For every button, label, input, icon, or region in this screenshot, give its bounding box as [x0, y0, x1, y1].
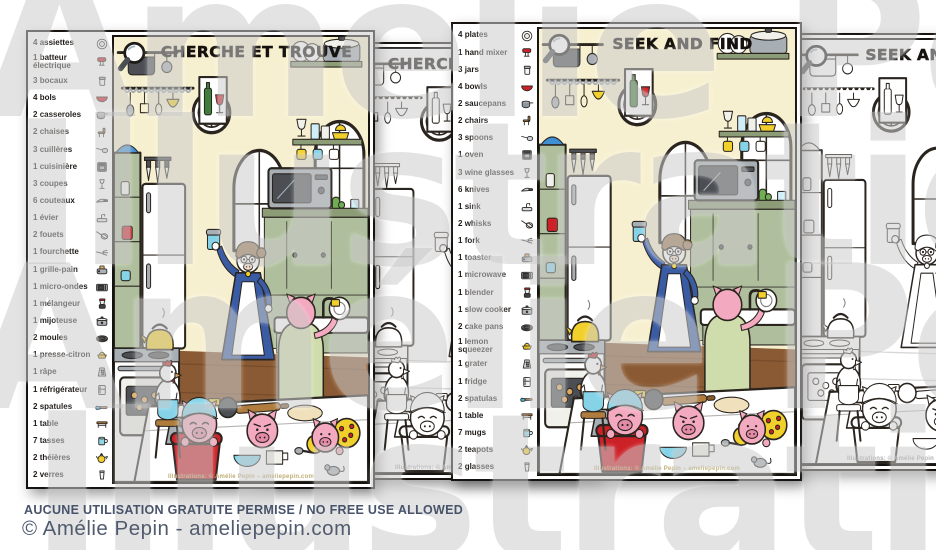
item-text: 1 grater — [458, 360, 487, 368]
kitchen-scene — [114, 37, 368, 482]
list-item: 2 teapots — [458, 444, 534, 457]
item-count: 2 — [458, 394, 462, 403]
item-text: 7 mugs — [458, 429, 486, 437]
jar-icon — [520, 64, 534, 76]
item-text: 1 lemon squeezer — [458, 338, 519, 354]
item-text: 1 mélangeur — [33, 300, 80, 308]
item-count: 6 — [458, 185, 462, 194]
item-count: 1 — [33, 282, 37, 291]
list-item: 1 sink — [458, 200, 534, 213]
cakepan-icon — [95, 332, 109, 344]
illustration-credit: Illustrations: © Amélie Pepin – ameliepe… — [796, 456, 936, 462]
item-text: 2 chaises — [33, 128, 69, 136]
table-icon — [520, 410, 534, 422]
item-count: 1 — [33, 385, 37, 394]
item-count: 2 — [33, 470, 37, 479]
list-item: 1 lemon squeezer — [458, 338, 534, 354]
list-item: 2 casseroles — [33, 109, 109, 122]
item-text: 1 fourchette — [33, 248, 79, 256]
item-text: 2 chairs — [458, 117, 488, 125]
list-item: 1 blender — [458, 286, 534, 299]
item-label: bocaux — [40, 76, 68, 85]
item-text: 4 bols — [33, 94, 56, 102]
item-label: réfrigérateur — [40, 385, 88, 394]
item-label: wine glasses — [465, 168, 514, 177]
item-count: 3 — [33, 76, 37, 85]
saucepan-icon — [95, 109, 109, 121]
item-label: table — [465, 411, 484, 420]
knife-icon — [95, 195, 109, 207]
fork-icon — [520, 235, 534, 247]
item-count: 2 — [458, 322, 462, 331]
item-label: coupes — [40, 179, 68, 188]
list-item: 1 grille-pain — [33, 263, 109, 276]
item-text: 3 wine glasses — [458, 169, 514, 177]
item-label: slow cooker — [465, 305, 511, 314]
list-item: 7 tasses — [33, 435, 109, 448]
item-text: 2 verres — [33, 471, 64, 479]
item-label: assiettes — [40, 38, 74, 47]
plate-icon — [95, 38, 109, 50]
list-item: 2 théières — [33, 452, 109, 465]
list-item: 1 oven — [458, 149, 534, 162]
sink-icon — [95, 212, 109, 224]
item-text: 1 râpe — [33, 368, 57, 376]
item-count: 1 — [458, 288, 462, 297]
item-count: 1 — [458, 359, 462, 368]
page-title: CHERCHE ET TROUVE — [148, 43, 365, 61]
item-count: 2 — [458, 219, 462, 228]
list-item: 2 moules — [33, 332, 109, 345]
table-icon — [95, 418, 109, 430]
item-text: 6 couteaux — [33, 197, 75, 205]
whisk-icon — [520, 218, 534, 230]
spatula-icon — [95, 401, 109, 413]
bowl-icon — [520, 81, 534, 93]
grater-icon — [95, 366, 109, 378]
list-item: 6 knives — [458, 183, 534, 196]
list-item: 1 cuisinière — [33, 160, 109, 173]
item-text: 2 cake pans — [458, 323, 503, 331]
whisk-icon — [95, 229, 109, 241]
item-label: knives — [465, 185, 490, 194]
illustration-credit: Illustrations: © Amélie Pepin – ameliepe… — [539, 466, 795, 472]
item-text: 2 spatules — [33, 403, 72, 411]
item-text: 1 hand mixer — [458, 49, 507, 57]
list-item: 2 saucepans — [458, 98, 534, 111]
jar-icon — [95, 75, 109, 87]
item-count: 1 — [33, 350, 37, 359]
item-label: mélangeur — [40, 299, 80, 308]
item-count: 7 — [458, 428, 462, 437]
item-count: 3 — [458, 168, 462, 177]
item-count: 3 — [458, 65, 462, 74]
list-item: 3 bocaux — [33, 75, 109, 88]
item-count: 2 — [458, 462, 462, 471]
item-text: 3 spoons — [458, 134, 493, 142]
item-label: fork — [465, 236, 480, 245]
item-label: spatulas — [465, 394, 497, 403]
item-text: 2 whisks — [458, 220, 491, 228]
list-item: 3 jars — [458, 63, 534, 76]
fork-icon — [95, 247, 109, 259]
item-label: grille-pain — [40, 265, 78, 274]
item-text: 1 fork — [458, 237, 480, 245]
item-text: 1 batteur électrique — [33, 54, 94, 70]
item-count: 3 — [33, 145, 37, 154]
copyright-line: © Amélie Pepin - ameliepepin.com — [22, 517, 352, 541]
glass-icon — [520, 461, 534, 473]
preview-canvas: 4 assiettes1 batteur électrique3 bocaux4… — [0, 0, 936, 550]
list-item: 1 table — [33, 417, 109, 430]
item-count: 2 — [33, 333, 37, 342]
item-count: 1 — [458, 377, 462, 386]
list-item: 3 coupes — [33, 177, 109, 190]
list-item: 4 plates — [458, 29, 534, 42]
item-text: 2 moules — [33, 334, 68, 342]
item-count: 3 — [33, 179, 37, 188]
item-text: 2 glasses — [458, 463, 494, 471]
item-text: 4 bowls — [458, 83, 487, 91]
list-item: 1 hand mixer — [458, 46, 534, 59]
item-label: mugs — [465, 428, 486, 437]
magnifier-icon — [116, 41, 149, 79]
item-count: 1 — [33, 367, 37, 376]
item-label: râpe — [40, 367, 57, 376]
item-count: 7 — [33, 436, 37, 445]
item-count: 1 — [33, 316, 37, 325]
mug-icon — [95, 435, 109, 447]
item-text: 1 slow cooker — [458, 306, 511, 314]
wineglass-icon — [520, 167, 534, 179]
item-count: 1 — [458, 150, 462, 159]
item-count: 2 — [458, 99, 462, 108]
page-title: SEEK AND FIND — [573, 35, 792, 53]
item-label: toaster — [465, 253, 492, 262]
list-item: 7 mugs — [458, 427, 534, 440]
item-count: 1 — [458, 305, 462, 314]
list-item: 2 spatules — [33, 400, 109, 413]
item-label: presse-citron — [40, 350, 91, 359]
item-label: chaises — [40, 127, 69, 136]
toaster-icon — [520, 252, 534, 264]
list-item: 1 micro-ondes — [33, 280, 109, 293]
kitchen-scene — [796, 40, 936, 464]
item-count: 1 — [33, 299, 37, 308]
item-text: 1 presse-citron — [33, 351, 90, 359]
list-item: 1 mélangeur — [33, 297, 109, 310]
item-text: 1 évier — [33, 214, 58, 222]
item-label: fourchette — [40, 247, 79, 256]
item-text: 1 mijoteuse — [33, 317, 77, 325]
item-text: 2 teapots — [458, 446, 493, 454]
chair-icon — [520, 115, 534, 127]
grater-icon — [520, 358, 534, 370]
squeezer-icon — [520, 340, 534, 352]
microwave-icon — [95, 281, 109, 293]
item-count: 1 — [33, 419, 37, 428]
list-item: 4 assiettes — [33, 37, 109, 50]
page-title: SEEK AND FIND — [830, 46, 936, 64]
magnifier-icon — [798, 44, 831, 82]
list-item: 2 whisks — [458, 218, 534, 231]
item-text: 1 oven — [458, 151, 483, 159]
item-list: 4 plates1 hand mixer3 jars4 bowls2 sauce… — [456, 27, 535, 476]
item-text: 1 table — [458, 412, 483, 420]
item-count: 4 — [33, 38, 37, 47]
list-item: 1 grater — [458, 358, 534, 371]
slowcooker-icon — [520, 304, 534, 316]
spoon-icon — [520, 132, 534, 144]
item-text: 1 toaster — [458, 254, 491, 262]
item-label: bols — [40, 93, 56, 102]
list-item: 1 batteur électrique — [33, 54, 109, 70]
item-label: saucepans — [465, 99, 506, 108]
item-label: bowls — [465, 82, 488, 91]
item-label: théières — [40, 453, 71, 462]
list-item: 2 verres — [33, 469, 109, 482]
item-count: 1 — [33, 162, 37, 171]
item-label: batteur électrique — [33, 53, 71, 70]
spoon-icon — [95, 144, 109, 156]
page-english-color: 4 plates1 hand mixer3 jars4 bowls2 sauce… — [451, 22, 802, 481]
item-label: fridge — [465, 377, 487, 386]
mixer-icon — [520, 47, 534, 59]
list-item: 3 spoons — [458, 132, 534, 145]
mixer-icon — [95, 56, 109, 68]
knife-icon — [520, 184, 534, 196]
item-count: 2 — [458, 116, 462, 125]
list-item: 2 cake pans — [458, 320, 534, 333]
bowl-icon — [95, 92, 109, 104]
list-item: 1 presse-citron — [33, 349, 109, 362]
list-item: 1 fork — [458, 235, 534, 248]
item-text: 1 micro-ondes — [33, 283, 88, 291]
item-label: plates — [465, 30, 488, 39]
list-item: 1 évier — [33, 212, 109, 225]
microwave-icon — [520, 269, 534, 281]
item-label: lemon squeezer — [458, 337, 493, 354]
item-count: 1 — [458, 253, 462, 262]
item-text: 3 bocaux — [33, 77, 68, 85]
item-text: 4 assiettes — [33, 39, 74, 47]
item-count: 1 — [458, 236, 462, 245]
item-count: 2 — [33, 453, 37, 462]
list-item: 2 glasses — [458, 461, 534, 474]
list-item: 2 chaises — [33, 126, 109, 139]
item-text: 7 tasses — [33, 437, 65, 445]
item-label: cuillères — [40, 145, 72, 154]
item-label: oven — [465, 150, 484, 159]
magnifier-icon — [541, 33, 574, 71]
list-item: 6 couteaux — [33, 195, 109, 208]
item-text: 6 knives — [458, 186, 490, 194]
list-item: 4 bols — [33, 92, 109, 105]
item-text: 2 théières — [33, 454, 70, 462]
item-text: 2 saucepans — [458, 100, 506, 108]
item-text: 2 casseroles — [33, 111, 81, 119]
item-label: microwave — [465, 270, 506, 279]
list-item: 2 spatulas — [458, 392, 534, 405]
item-label: jars — [465, 65, 479, 74]
list-item: 1 fourchette — [33, 246, 109, 259]
no-free-use-notice: AUCUNE UTILISATION GRATUITE PERMISE / NO… — [24, 503, 463, 517]
item-label: teapots — [465, 445, 493, 454]
oven-icon — [520, 149, 534, 161]
list-item: 1 microwave — [458, 269, 534, 282]
list-item: 1 mijoteuse — [33, 315, 109, 328]
sink-icon — [520, 201, 534, 213]
item-label: micro-ondes — [40, 282, 88, 291]
toaster-icon — [95, 264, 109, 276]
item-count: 1 — [458, 411, 462, 420]
list-item: 1 slow cooker — [458, 303, 534, 316]
item-label: cuisinière — [40, 162, 77, 171]
item-count: 2 — [33, 402, 37, 411]
glass-icon — [95, 469, 109, 481]
item-text: 2 fouets — [33, 231, 64, 239]
item-count: 4 — [33, 93, 37, 102]
list-item: 3 wine glasses — [458, 166, 534, 179]
item-label: whisks — [465, 219, 492, 228]
list-item: 1 table — [458, 409, 534, 422]
item-count: 4 — [458, 30, 462, 39]
item-text: 2 spatulas — [458, 395, 497, 403]
item-count: 1 — [458, 48, 462, 57]
scene-illustration: SEEK AND FIND Illustrations: © Amélie Pe… — [537, 27, 797, 476]
blender-icon — [520, 287, 534, 299]
item-label: fouets — [40, 230, 64, 239]
item-label: blender — [465, 288, 494, 297]
spatula-icon — [520, 393, 534, 405]
kitchen-scene — [539, 29, 795, 474]
item-text: 4 plates — [458, 31, 488, 39]
item-count: 2 — [33, 127, 37, 136]
item-text: 1 réfrigérateur — [33, 386, 87, 394]
item-text: 1 cuisinière — [33, 163, 77, 171]
item-count: 2 — [458, 445, 462, 454]
list-item: 3 cuillères — [33, 143, 109, 156]
item-text: 1 grille-pain — [33, 266, 78, 274]
fridge-icon — [520, 376, 534, 388]
scene-illustration: SEEK AND FIND Illustrations: © Amélie Pe… — [794, 38, 936, 466]
item-label: chairs — [465, 116, 489, 125]
item-label: cake pans — [465, 322, 504, 331]
wineglass-icon — [95, 178, 109, 190]
list-item: 2 chairs — [458, 115, 534, 128]
list-item: 1 réfrigérateur — [33, 383, 109, 396]
blender-icon — [95, 298, 109, 310]
fridge-icon — [95, 384, 109, 396]
item-label: grater — [465, 359, 488, 368]
item-label: hand mixer — [465, 48, 508, 57]
item-label: spatules — [40, 402, 72, 411]
list-item: 2 fouets — [33, 229, 109, 242]
item-text: 1 blender — [458, 289, 494, 297]
page-french-color: 4 assiettes1 batteur électrique3 bocaux4… — [26, 30, 375, 489]
item-count: 4 — [458, 82, 462, 91]
item-label: casseroles — [40, 110, 81, 119]
item-count: 1 — [33, 247, 37, 256]
oven-icon — [95, 161, 109, 173]
list-item: 4 bowls — [458, 80, 534, 93]
chair-icon — [95, 127, 109, 139]
cakepan-icon — [520, 321, 534, 333]
item-count: 3 — [458, 133, 462, 142]
item-label: moules — [40, 333, 68, 342]
item-label: glasses — [465, 462, 494, 471]
list-item: 1 fridge — [458, 375, 534, 388]
item-list: 4 assiettes1 batteur électrique3 bocaux4… — [31, 35, 110, 484]
item-count: 2 — [33, 230, 37, 239]
item-text: 3 coupes — [33, 180, 68, 188]
illustration-credit: Illustrations: © Amélie Pepin – ameliepe… — [114, 474, 368, 480]
item-text: 1 microwave — [458, 271, 506, 279]
item-label: évier — [40, 213, 59, 222]
squeezer-icon — [95, 349, 109, 361]
item-text: 3 jars — [458, 66, 479, 74]
item-label: couteaux — [40, 196, 75, 205]
item-count: 1 — [458, 270, 462, 279]
list-item: 1 toaster — [458, 252, 534, 265]
item-label: verres — [40, 470, 64, 479]
slowcooker-icon — [95, 315, 109, 327]
item-count: 6 — [33, 196, 37, 205]
item-count: 1 — [458, 202, 462, 211]
item-label: sink — [465, 202, 481, 211]
item-count: 1 — [33, 213, 37, 222]
item-text: 1 table — [33, 420, 58, 428]
item-label: tasses — [40, 436, 65, 445]
list-item: 1 râpe — [33, 366, 109, 379]
item-count: 1 — [33, 265, 37, 274]
item-text: 3 cuillères — [33, 146, 72, 154]
saucepan-icon — [520, 98, 534, 110]
item-count: 2 — [33, 110, 37, 119]
teapot-icon — [95, 452, 109, 464]
item-label: mijoteuse — [40, 316, 77, 325]
scene-illustration: CHERCHE ET TROUVE Illustrations: © Améli… — [112, 35, 370, 484]
plate-icon — [520, 30, 534, 42]
item-text: 1 fridge — [458, 378, 487, 386]
mug-icon — [520, 427, 534, 439]
item-label: table — [40, 419, 59, 428]
item-text: 1 sink — [458, 203, 481, 211]
item-label: spoons — [465, 133, 493, 142]
teapot-icon — [520, 444, 534, 456]
